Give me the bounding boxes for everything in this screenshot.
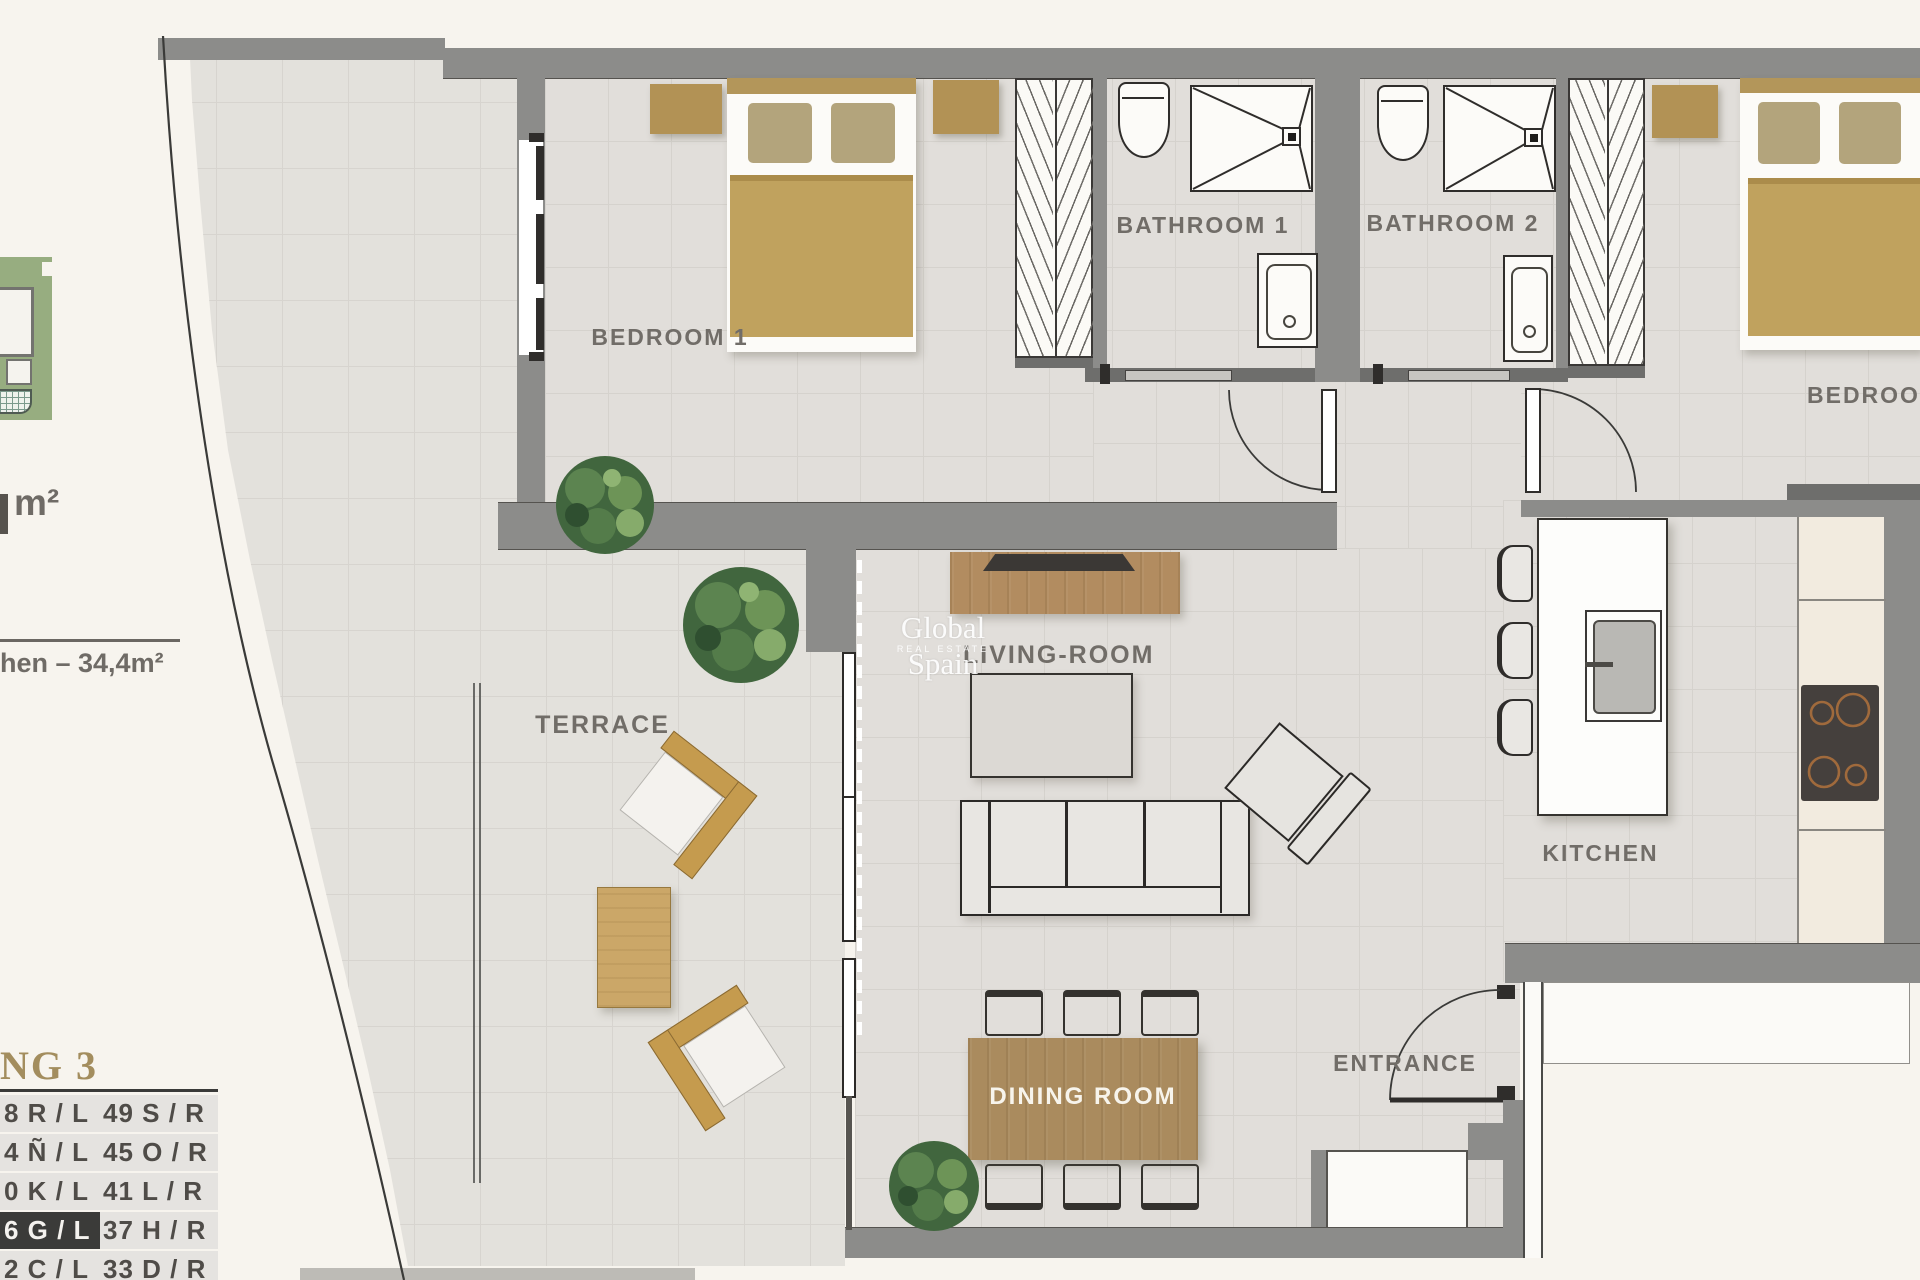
closet-left-wall	[1311, 1150, 1326, 1230]
hall-south-wall	[498, 502, 1337, 550]
shower-icon	[1443, 85, 1556, 192]
shower-icon	[1190, 85, 1313, 192]
wardrobe	[1015, 78, 1093, 358]
kitchen-east-wall	[1884, 500, 1920, 982]
tv-icon	[983, 554, 1135, 571]
toilet-icon	[1118, 82, 1170, 158]
dining-chair	[985, 1164, 1043, 1210]
bath2-right-wall	[1556, 58, 1568, 382]
door-frame-icon	[1497, 985, 1515, 999]
bath1-left-wall	[1093, 58, 1107, 382]
window-frame-icon	[529, 133, 544, 142]
nightstand	[933, 80, 999, 134]
entrance-step-wall	[1468, 1123, 1505, 1160]
door-frame-icon	[1497, 1086, 1515, 1100]
building-table: NG 3 8 R / L 49 S / R 4 Ñ / L 45 O / R 0…	[0, 1042, 230, 1280]
entrance-right-wall	[1503, 1100, 1523, 1258]
dining-chair	[1141, 1164, 1199, 1210]
window-frame-icon	[536, 146, 544, 200]
pillow	[1758, 102, 1820, 164]
top-wall	[443, 48, 1920, 79]
toilet-icon	[1377, 85, 1429, 161]
window-frame-icon	[536, 214, 544, 284]
bathroom2-label: BATHROOM 2	[1363, 210, 1543, 236]
cooktop-icon	[1801, 685, 1879, 801]
entrance-closet	[1326, 1150, 1468, 1230]
terrace-bottom-strip	[300, 1268, 695, 1280]
sink-icon	[1503, 255, 1553, 362]
table-row: 8 R / L 49 S / R	[0, 1095, 218, 1132]
dining-chair	[1063, 990, 1121, 1036]
bar-stool	[1497, 699, 1533, 756]
dining-west-wall	[846, 1096, 852, 1230]
kitchen-area-fragment: hen – 34,4m²	[0, 648, 164, 679]
nightstand	[650, 84, 722, 134]
dining-chair	[1063, 1164, 1121, 1210]
living-west-wall-stub	[806, 548, 856, 652]
bath2-sliding-door	[1408, 370, 1510, 381]
glass-wall-icon	[857, 560, 862, 1040]
kitchen-north-wall	[1521, 500, 1920, 517]
terrace-table	[597, 887, 671, 1008]
bath-divider-wall	[1315, 58, 1360, 382]
south-wall	[845, 1227, 1503, 1258]
door-frame-icon	[1100, 364, 1110, 384]
table-row: 4 Ñ / L 45 O / R	[0, 1134, 218, 1171]
dining-room-label: DINING ROOM	[968, 1084, 1198, 1110]
entrance-corridor	[1523, 982, 1543, 1258]
floor-plan: DINING ROOM	[0, 0, 1920, 1280]
terrace-top-wall	[158, 38, 445, 60]
dining-table: DINING ROOM	[968, 1038, 1198, 1160]
bed-2	[1740, 78, 1920, 350]
table-row: 2 C / L 33 D / R	[0, 1251, 218, 1280]
island-sink-icon	[1585, 610, 1662, 722]
bar-stool	[1497, 622, 1533, 679]
pillow	[1839, 102, 1901, 164]
blanket	[730, 175, 913, 337]
pillow	[748, 103, 812, 163]
coffee-table	[970, 673, 1133, 778]
bedroom1-label: BEDROOM 1	[585, 324, 755, 350]
door-frame-icon	[1373, 364, 1383, 384]
headboard	[1740, 78, 1920, 93]
entrance-landing	[1543, 982, 1910, 1064]
kitchen-south-wall	[1505, 943, 1920, 983]
pillow	[831, 103, 895, 163]
headboard	[727, 78, 916, 94]
entrance-label: ENTRANCE	[1325, 1050, 1485, 1076]
kitchen-back-counter	[1787, 484, 1920, 500]
kitchen-label: KITCHEN	[1538, 840, 1663, 866]
building-table-title: NG 3	[0, 1042, 98, 1089]
area-unit: m²	[14, 482, 59, 524]
bed-1	[727, 78, 916, 352]
wardrobe	[1568, 78, 1645, 366]
blanket	[1748, 178, 1920, 336]
terrace-sliding-door-panel	[842, 796, 856, 942]
dining-chair	[1141, 990, 1199, 1036]
bar-stool	[1497, 545, 1533, 602]
terrace-label: TERRACE	[530, 712, 675, 738]
watermark-tagline: REAL ESTATE	[868, 644, 1018, 654]
bathroom1-label: BATHROOM 1	[1108, 212, 1298, 238]
area-divider-line	[0, 639, 180, 642]
terrace-sliding-door-panel	[842, 958, 856, 1098]
sink-icon	[1257, 253, 1318, 348]
dining-chair	[985, 990, 1043, 1036]
window-frame-icon	[529, 352, 544, 361]
terrace-sliding-door-panel	[842, 652, 856, 798]
wardrobe-base	[1568, 366, 1645, 378]
site-plan-thumbnail	[0, 257, 52, 420]
table-row: 0 K / L 41 L / R	[0, 1173, 218, 1210]
bedroom2-label: BEDROOM	[1807, 382, 1920, 408]
window-frame-icon	[536, 298, 544, 350]
bath1-sliding-door	[1125, 370, 1232, 381]
nightstand	[1652, 85, 1718, 138]
table-row-highlighted: 6 G / L 37 H / R	[0, 1212, 218, 1249]
sofa	[960, 800, 1250, 916]
